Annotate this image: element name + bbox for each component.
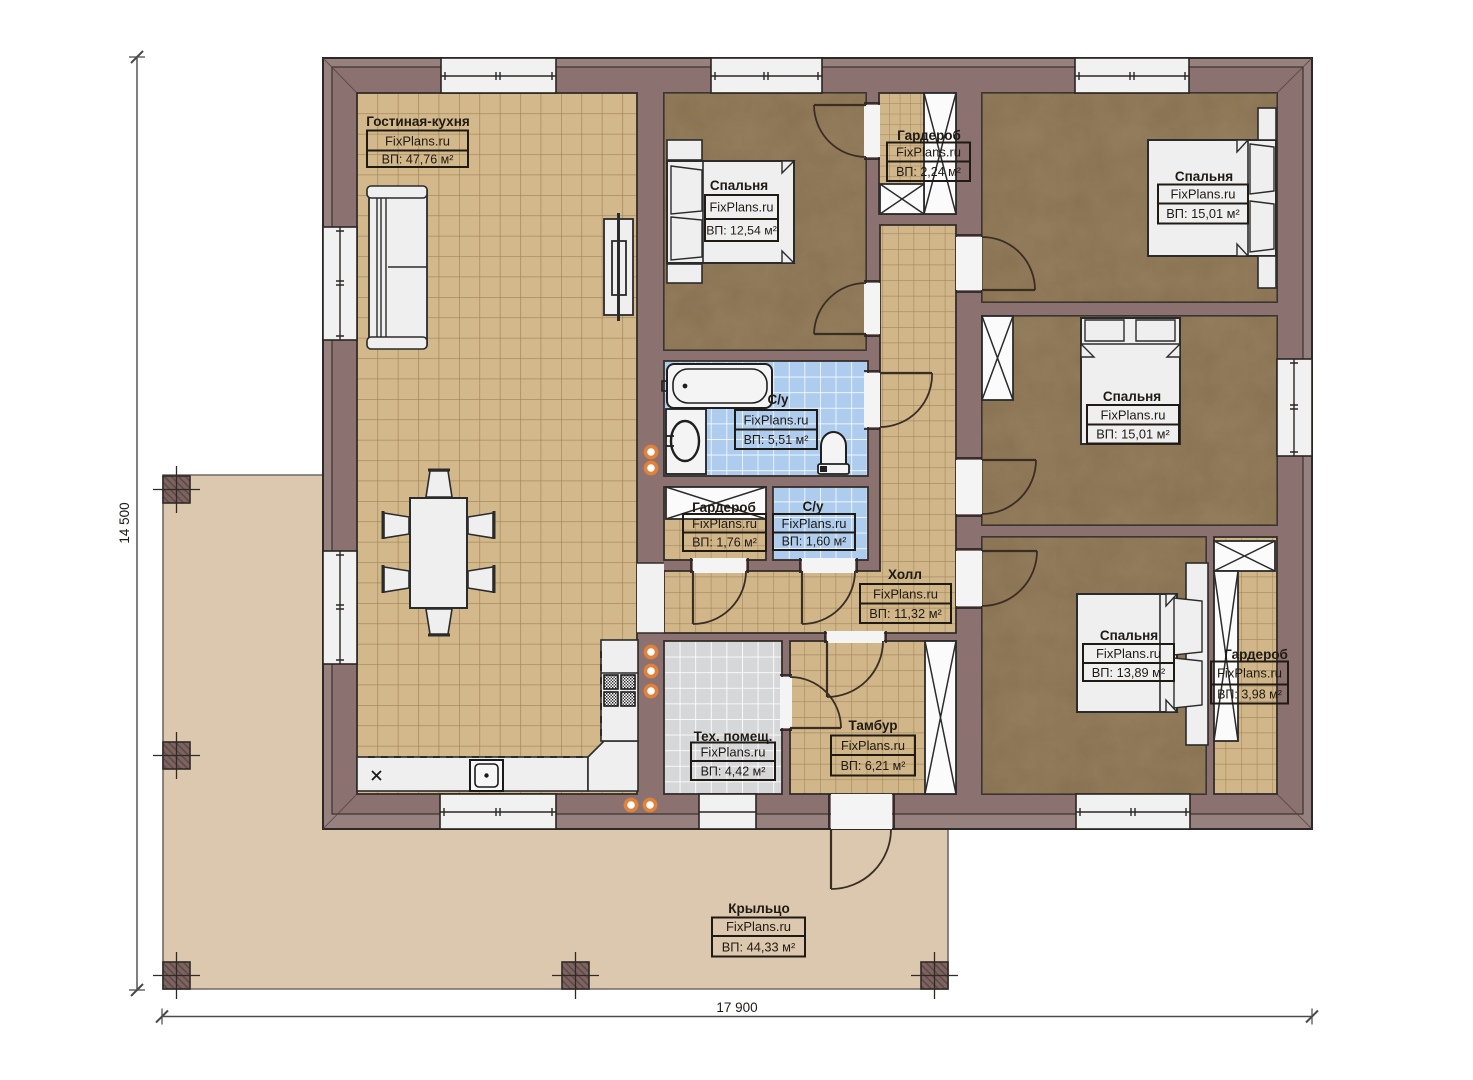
svg-text:FixPlans.ru: FixPlans.ru [873,587,938,602]
svg-text:ВП: 6,21 м²: ВП: 6,21 м² [841,759,906,773]
svg-text:FixPlans.ru: FixPlans.ru [743,413,808,428]
svg-text:ВП: 12,54 м²: ВП: 12,54 м² [706,224,777,238]
svg-text:ВП: 47,76 м²: ВП: 47,76 м² [382,153,454,167]
svg-text:FixPlans.ru: FixPlans.ru [896,145,961,160]
svg-text:FixPlans.ru: FixPlans.ru [692,516,757,531]
svg-text:Спальня: Спальня [710,178,768,193]
svg-text:Тамбур: Тамбур [849,718,898,733]
svg-text:ВП: 2,24 м²: ВП: 2,24 м² [896,165,961,179]
svg-text:ВП: 3,98 м²: ВП: 3,98 м² [1217,688,1282,702]
svg-text:FixPlans.ru: FixPlans.ru [700,745,765,760]
svg-text:FixPlans.ru: FixPlans.ru [1170,187,1235,202]
svg-text:ВП: 15,01 м²: ВП: 15,01 м² [1096,427,1170,442]
svg-text:Спальня: Спальня [1100,628,1158,643]
svg-text:Спальня: Спальня [1175,169,1233,184]
svg-text:ВП: 4,42 м²: ВП: 4,42 м² [701,765,766,779]
svg-text:17 900: 17 900 [716,1000,757,1015]
svg-text:Гостиная-кухня: Гостиная-кухня [366,114,469,129]
svg-text:С/у: С/у [802,499,824,514]
svg-text:ВП: 1,60 м²: ВП: 1,60 м² [782,535,847,549]
svg-text:ВП: 5,51 м²: ВП: 5,51 м² [744,433,809,447]
svg-text:FixPlans.ru: FixPlans.ru [1217,666,1282,681]
svg-text:Гардероб: Гардероб [1224,647,1288,662]
svg-text:ВП: 13,89 м²: ВП: 13,89 м² [1092,665,1166,680]
svg-text:FixPlans.ru: FixPlans.ru [1100,408,1165,423]
svg-text:FixPlans.ru: FixPlans.ru [781,516,846,531]
svg-text:ВП: 1,76 м²: ВП: 1,76 м² [692,536,757,550]
svg-text:Спальня: Спальня [1103,389,1161,404]
svg-text:ВП: 11,32 м²: ВП: 11,32 м² [869,606,942,621]
svg-text:14 500: 14 500 [117,502,132,543]
svg-text:FixPlans.ru: FixPlans.ru [385,134,450,149]
svg-text:FixPlans.ru: FixPlans.ru [841,738,905,753]
svg-text:Холл: Холл [888,567,922,582]
svg-text:Гардероб: Гардероб [692,500,756,515]
svg-text:С/у: С/у [767,392,789,407]
svg-text:Гардероб: Гардероб [897,128,961,143]
svg-text:ВП: 15,01 м²: ВП: 15,01 м² [1166,206,1240,221]
svg-text:ВП: 44,33 м²: ВП: 44,33 м² [722,940,796,955]
svg-text:FixPlans.ru: FixPlans.ru [709,200,773,215]
svg-text:Крыльцо: Крыльцо [728,901,789,916]
svg-text:FixPlans.ru: FixPlans.ru [1096,646,1161,661]
svg-text:FixPlans.ru: FixPlans.ru [726,919,791,934]
